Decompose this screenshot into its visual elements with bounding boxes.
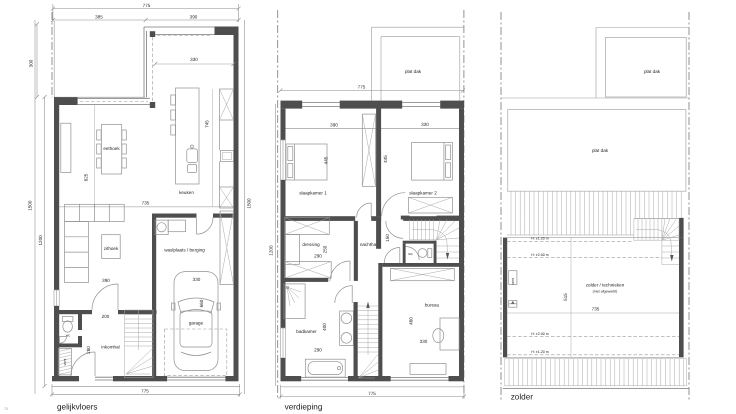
- svg-text:390: 390: [190, 14, 198, 19]
- svg-text:nachthal: nachthal: [360, 242, 377, 247]
- svg-text:300: 300: [29, 59, 34, 67]
- svg-text:460: 460: [409, 317, 414, 325]
- svg-text:H: ±2.00 m: H: ±2.00 m: [531, 332, 549, 336]
- svg-text:dressing: dressing: [302, 242, 320, 247]
- svg-text:445: 445: [383, 155, 388, 163]
- svg-text:280: 280: [86, 346, 91, 354]
- svg-text:445: 445: [324, 156, 329, 164]
- svg-text:390: 390: [102, 278, 110, 283]
- svg-text:1500: 1500: [27, 200, 32, 211]
- svg-text:1500: 1500: [247, 198, 252, 209]
- svg-text:735: 735: [592, 307, 600, 312]
- svg-text:zithoek: zithoek: [104, 246, 119, 251]
- svg-text:745: 745: [205, 120, 210, 128]
- svg-text:330: 330: [193, 277, 201, 282]
- svg-text:150: 150: [385, 234, 390, 242]
- svg-text:garage: garage: [189, 321, 204, 326]
- svg-text:775: 775: [358, 85, 366, 90]
- svg-text:735: 735: [142, 201, 150, 206]
- svg-text:bureau: bureau: [425, 303, 440, 308]
- svg-text:H: ±1.20 m: H: ±1.20 m: [531, 237, 549, 241]
- svg-text:400: 400: [322, 323, 327, 331]
- svg-text:eethoek: eethoek: [103, 146, 120, 151]
- svg-text:775: 775: [141, 389, 149, 394]
- svg-text:330: 330: [420, 339, 428, 344]
- svg-text:zolder / technieken: zolder / technieken: [586, 283, 625, 288]
- svg-text:H: ±1.20 m: H: ±1.20 m: [531, 350, 549, 354]
- svg-text:gelijkvloers: gelijkvloers: [57, 403, 98, 412]
- svg-text:zolder: zolder: [511, 393, 534, 402]
- svg-text:1200: 1200: [268, 245, 273, 256]
- svg-text:1200: 1200: [38, 235, 43, 246]
- svg-text:290: 290: [314, 348, 322, 353]
- svg-text:775: 775: [143, 3, 151, 8]
- svg-text:plat dak: plat dak: [644, 69, 661, 74]
- svg-text:390: 390: [330, 123, 338, 128]
- svg-text:plat dak: plat dak: [592, 148, 609, 153]
- svg-text:plat dak: plat dak: [405, 69, 422, 74]
- svg-text:825: 825: [84, 173, 89, 181]
- svg-text:H: ±2.00 m: H: ±2.00 m: [531, 253, 549, 257]
- svg-text:inkomhal: inkomhal: [101, 345, 119, 350]
- svg-text:330: 330: [190, 57, 198, 62]
- svg-text:vent: vent: [63, 359, 67, 366]
- svg-text:badkamer: badkamer: [296, 329, 317, 334]
- svg-text:slaapkamer 1: slaapkamer 1: [299, 191, 327, 196]
- svg-text:200: 200: [102, 314, 110, 319]
- svg-text:keuken: keuken: [179, 190, 194, 195]
- svg-text:775: 775: [368, 391, 376, 396]
- svg-text:385: 385: [95, 14, 103, 19]
- svg-text:660: 660: [199, 299, 204, 307]
- svg-text:330: 330: [421, 122, 429, 127]
- svg-text:waslplaats / berging: waslplaats / berging: [164, 248, 205, 253]
- svg-text:wc: wc: [408, 252, 413, 256]
- svg-text:slaapkamer 2: slaapkamer 2: [409, 191, 437, 196]
- svg-text:515: 515: [563, 293, 568, 301]
- svg-text:250: 250: [323, 245, 328, 253]
- svg-text:75: 75: [4, 407, 8, 411]
- svg-text:verdieping: verdieping: [285, 403, 323, 412]
- svg-text:290: 290: [314, 254, 322, 259]
- svg-text:(niet afgewerkt): (niet afgewerkt): [593, 290, 618, 294]
- svg-text:vent: vent: [511, 278, 515, 285]
